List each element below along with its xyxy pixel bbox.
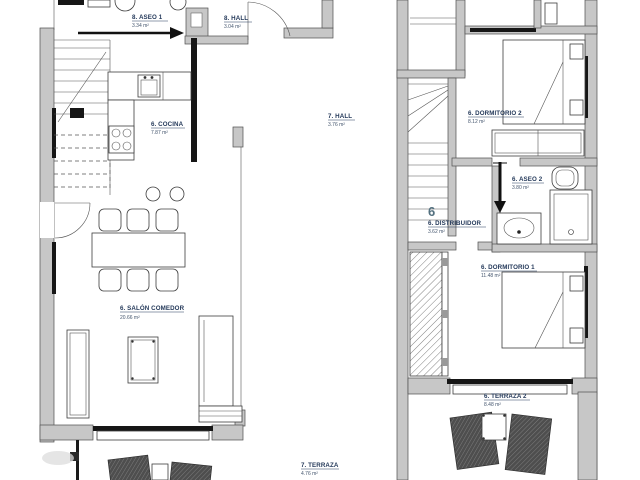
door-opening xyxy=(40,202,54,238)
door-swing-arc xyxy=(55,203,90,238)
sun-lounger-icon xyxy=(505,414,552,474)
pillow xyxy=(570,100,583,115)
table-corner-dot xyxy=(152,340,154,342)
window-band xyxy=(52,242,56,294)
sun-lounger-icon xyxy=(108,455,152,480)
room-area-distribuidor: 3.62 m² xyxy=(428,229,445,235)
room-label-hall8: 8. HALL xyxy=(224,15,248,22)
room-area-terraza2: 8.48 m² xyxy=(484,402,501,408)
chair-icon xyxy=(156,209,178,231)
kitchen-wall xyxy=(191,38,197,162)
bedroom2 xyxy=(492,40,585,156)
upper-landing xyxy=(410,18,456,24)
room-area-dormitorio1: 11.48 m² xyxy=(481,273,501,279)
pillow xyxy=(570,276,583,291)
entry-wall-stub xyxy=(322,0,333,28)
terrace-table xyxy=(152,464,168,480)
table-corner-dot xyxy=(482,414,485,417)
room-label-distribuidor: 6. DISTRIBUIDOR xyxy=(428,220,481,227)
living-area xyxy=(67,316,242,422)
left-floor-plan: 8. ASEO 1 3.34 m² 8. HALL 3.04 m² 6. COC… xyxy=(40,0,355,480)
terrace2-door xyxy=(447,379,573,394)
closet-door-tick xyxy=(442,310,448,318)
entry-wall xyxy=(284,28,333,38)
terrace2 xyxy=(450,412,552,474)
sliding-door-track xyxy=(93,426,213,431)
bedroom2-bottom-wall xyxy=(452,158,492,166)
dining-area xyxy=(92,187,185,291)
cabinet-icon xyxy=(545,3,557,24)
chair-icon xyxy=(99,269,121,291)
window-band xyxy=(58,0,84,5)
sideboard xyxy=(67,330,89,418)
stair-cut-marker xyxy=(70,108,84,118)
room-label-dormitorio1: 6. DORMITORIO 1 xyxy=(481,264,535,271)
stair-side-wall xyxy=(448,78,456,236)
room-area-hall8: 3.04 m² xyxy=(224,24,241,30)
room-label-dormitorio2: 6. DORMITORIO 2 xyxy=(468,110,522,117)
room-label-salon: 6. SALÓN COMEDOR xyxy=(120,304,185,312)
chair-icon xyxy=(127,269,149,291)
table-corner-dot xyxy=(503,437,506,440)
window-band xyxy=(470,28,536,32)
room-label-aseo1: 8. ASEO 1 xyxy=(132,14,163,21)
watermark-smudge xyxy=(42,451,74,465)
shower-icon xyxy=(550,190,592,244)
room-area-aseo2: 3.80 m² xyxy=(512,185,529,191)
aseo1-fixtures xyxy=(88,0,186,11)
chair-icon xyxy=(99,209,121,231)
floor-plan-page: 8. ASEO 1 3.34 m² 8. HALL 3.04 m² 6. COC… xyxy=(0,0,640,480)
table-corner-dot xyxy=(131,377,133,379)
room-label-hall7: 7. HALL xyxy=(328,113,352,120)
staircase-right xyxy=(408,84,448,220)
dining-table xyxy=(92,233,185,267)
table-corner-dot xyxy=(503,414,506,417)
sink-icon xyxy=(138,75,160,97)
partition-notch xyxy=(191,13,202,27)
stair-winder xyxy=(408,96,448,132)
stool-icon xyxy=(170,187,184,201)
closet-door-tick xyxy=(442,258,448,266)
table-corner-dot xyxy=(131,340,133,342)
floor-plan-drawing: 8. ASEO 1 3.34 m² 8. HALL 3.04 m² 6. COC… xyxy=(0,0,640,480)
stair-winder xyxy=(408,86,448,100)
room-area-aseo1: 3.34 m² xyxy=(132,23,149,29)
room-area-cocina: 7.87 m² xyxy=(151,130,168,136)
stool-icon xyxy=(146,187,160,201)
drain-dot xyxy=(517,230,521,234)
window-band xyxy=(52,108,56,158)
kitchen xyxy=(108,38,197,162)
wall-jog xyxy=(233,127,243,147)
sliding-door-leaf xyxy=(97,431,209,440)
room-area-hall7: 3.76 m² xyxy=(328,122,345,128)
terrace2-right-wall xyxy=(578,392,597,480)
bedroom2-bottom-wall xyxy=(520,158,597,166)
dorm1-bottom-wall xyxy=(572,378,597,394)
landing-wall xyxy=(397,70,465,78)
cistern-icon xyxy=(88,0,110,7)
room-label-cocina: 6. COCINA xyxy=(151,121,184,128)
washbasin-counter xyxy=(497,213,541,244)
stair-winder xyxy=(408,90,448,116)
room-area-dormitorio2: 8.12 m² xyxy=(468,119,485,125)
top-room-divider xyxy=(534,0,541,28)
distribuidor-wall xyxy=(478,242,492,250)
entry-arrow xyxy=(78,27,184,39)
faucet-dot xyxy=(144,76,147,79)
room-area-terraza7: 4.76 m² xyxy=(301,471,318,477)
washbasin-icon xyxy=(115,0,135,11)
room-label-terraza7: 7. TERRAZA xyxy=(301,462,339,469)
toilet-icon xyxy=(170,0,186,10)
staircase-left xyxy=(54,40,110,195)
right-floor-plan: 6. DORMITORIO 2 8.12 m² 6. ASEO 2 3.80 m… xyxy=(397,0,597,480)
closet-icon xyxy=(410,252,442,376)
dorm1-bottom-wall xyxy=(408,378,450,394)
faucet-dot xyxy=(151,76,154,79)
sofa-end-table xyxy=(199,406,242,422)
table-corner-dot xyxy=(482,437,485,440)
pillow xyxy=(570,328,583,343)
terrace-wall-right xyxy=(212,425,243,440)
chair-icon xyxy=(127,209,149,231)
left-terrace xyxy=(40,425,243,480)
pillow xyxy=(570,44,583,59)
sun-lounger-icon xyxy=(169,462,212,480)
landing-divider-wall xyxy=(456,0,465,76)
room-label-aseo2: 6. ASEO 2 xyxy=(512,176,543,183)
room-area-salon: 20.66 m² xyxy=(120,315,140,321)
salon-door xyxy=(40,202,90,238)
sliding-door-track xyxy=(447,379,573,384)
closet-door-tick xyxy=(442,358,448,366)
room-label-terraza2: 6. TERRAZA 2 xyxy=(484,393,527,400)
unit-number: 6 xyxy=(428,204,435,219)
stove-icon xyxy=(109,126,134,153)
table-corner-dot xyxy=(152,377,154,379)
coffee-table xyxy=(128,337,158,383)
entry-arrow-head xyxy=(170,27,184,39)
aseo2-bottom-wall xyxy=(492,244,597,252)
chair-icon xyxy=(156,269,178,291)
terrace-wall-left xyxy=(40,425,93,440)
terrace-table xyxy=(482,414,506,440)
distribuidor-wall xyxy=(408,242,456,250)
